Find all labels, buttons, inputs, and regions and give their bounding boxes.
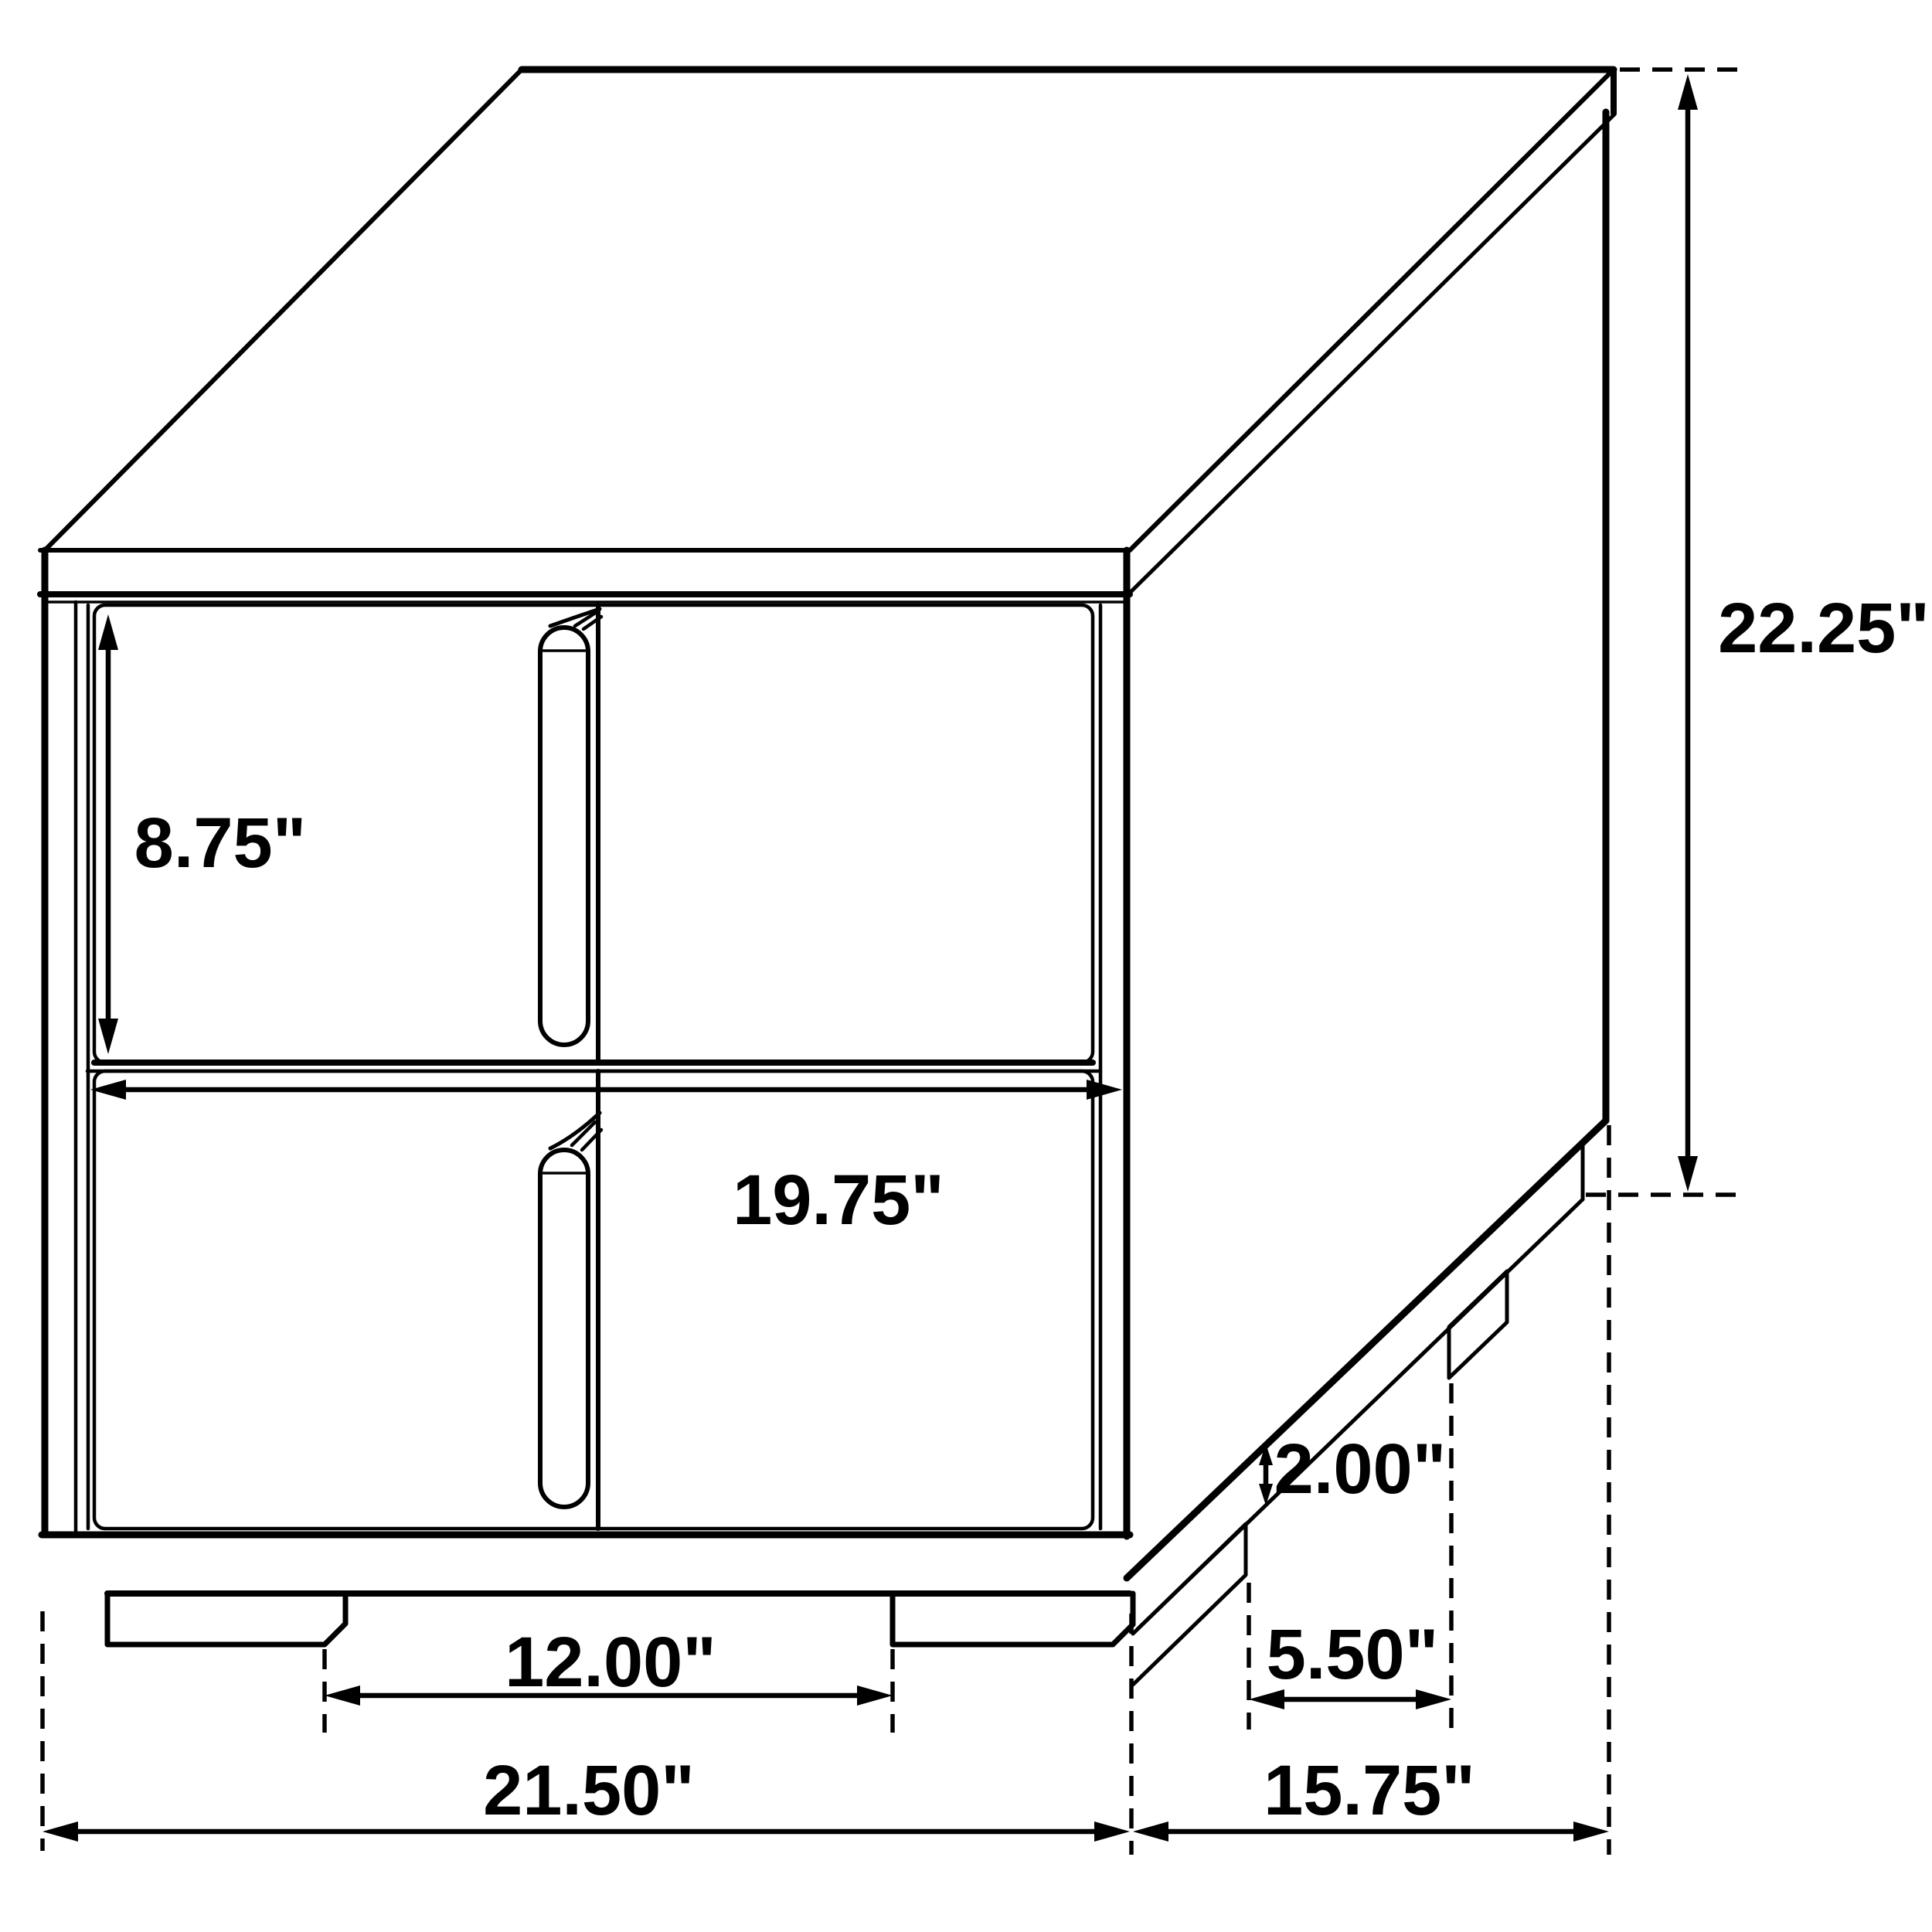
arrow-down-icon (98, 1019, 118, 1054)
arrow-right-icon (1573, 1821, 1609, 1842)
dim-label-overall-depth: 15.75" (1264, 1751, 1475, 1830)
dim-front-leg-spacing: 12.00" (325, 1623, 893, 1706)
dim-base-height: 2.00" (1259, 1430, 1446, 1509)
upper-handle-pull (540, 628, 588, 1045)
furniture-dimension-diagram: 8.75" 19.75" 22.25" 2.00" 12.00" 5.50" (0, 0, 1932, 1932)
arrow-right-icon (1087, 1080, 1122, 1100)
arrow-left-icon (1133, 1821, 1168, 1842)
drawer-fronts (87, 605, 1100, 1529)
dim-label-overall-height: 22.25" (1718, 589, 1930, 668)
side-bottom-edge (1127, 1121, 1606, 1578)
top-right-edge (1130, 70, 1614, 550)
arrow-up-icon (1678, 74, 1698, 110)
dim-drawer-width: 19.75" (90, 1080, 1122, 1240)
lower-handle-pull (540, 1150, 588, 1507)
top-band-bottom-right (1127, 115, 1614, 596)
arrow-right-icon (1094, 1821, 1130, 1842)
dim-drawer-height: 8.75" (98, 614, 306, 1054)
dim-label-drawer-width: 19.75" (733, 1161, 944, 1240)
nightstand-line-drawing: 8.75" 19.75" 22.25" 2.00" 12.00" 5.50" (0, 0, 1932, 1932)
arrow-up-icon (98, 614, 118, 650)
arrow-left-icon (43, 1821, 78, 1842)
dim-label-base-height: 2.00" (1274, 1430, 1447, 1509)
extension-lines (43, 70, 1745, 1855)
dim-overall-height: 22.25" (1678, 74, 1930, 1192)
top-panel (40, 70, 1614, 602)
dim-label-drawer-height: 8.75" (134, 804, 307, 883)
upper-handle (540, 609, 601, 1045)
front-left-leg (107, 1594, 345, 1645)
arrow-down-icon (1678, 1156, 1698, 1192)
top-left-edge (45, 70, 522, 550)
side-front-leg (1133, 1524, 1246, 1685)
lower-handle (540, 1113, 601, 1507)
dim-label-side-leg-spacing: 5.50" (1267, 1615, 1439, 1694)
arrow-left-icon (325, 1685, 360, 1706)
arrow-right-icon (857, 1685, 893, 1706)
dim-overall-width: 21.50" (43, 1751, 1130, 1842)
dim-overall-depth: 15.75" (1133, 1751, 1609, 1842)
dim-side-leg-spacing: 5.50" (1249, 1615, 1451, 1709)
side-back-leg (1449, 1271, 1507, 1378)
dim-label-front-leg-spacing: 12.00" (505, 1623, 716, 1702)
dim-label-overall-width: 21.50" (483, 1751, 695, 1830)
front-right-leg (893, 1594, 1133, 1645)
